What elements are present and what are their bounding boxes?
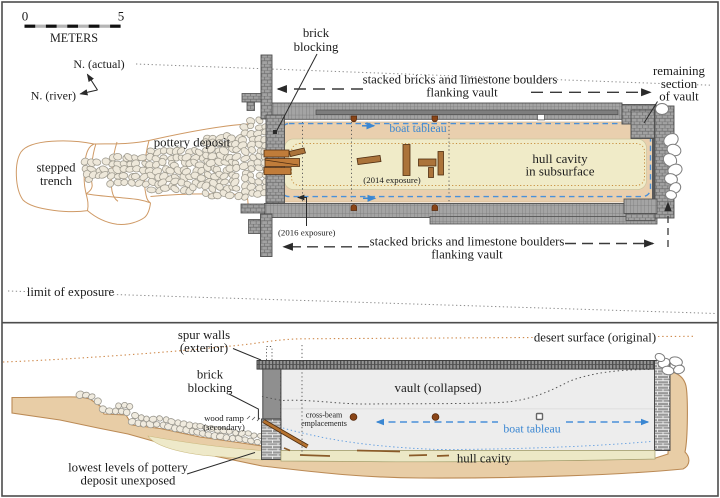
- svg-text:boat tableau: boat tableau: [503, 422, 560, 436]
- svg-text:stacked bricks and limestone b: stacked bricks and limestone boulders: [363, 73, 558, 87]
- svg-text:boat tableau: boat tableau: [389, 121, 446, 135]
- svg-text:(2014 exposure): (2014 exposure): [363, 175, 420, 185]
- svg-text:trench: trench: [40, 174, 73, 188]
- svg-text:(exterior): (exterior): [180, 341, 228, 355]
- svg-text:0: 0: [22, 9, 29, 24]
- svg-text:N. (river): N. (river): [31, 89, 76, 103]
- svg-text:brick: brick: [303, 26, 330, 40]
- svg-text:flanking vault: flanking vault: [431, 248, 503, 262]
- svg-text:deposit unexposed: deposit unexposed: [81, 474, 176, 488]
- svg-text:pottery deposit: pottery deposit: [154, 136, 231, 150]
- svg-text:emplacements: emplacements: [301, 419, 347, 428]
- svg-text:vault (collapsed): vault (collapsed): [395, 380, 482, 395]
- svg-text:of vault: of vault: [659, 90, 699, 104]
- svg-text:METERS: METERS: [50, 31, 98, 45]
- svg-text:flanking vault: flanking vault: [426, 86, 498, 100]
- svg-text:desert surface (original): desert surface (original): [534, 331, 656, 345]
- svg-text:lowest levels of pottery: lowest levels of pottery: [68, 461, 188, 475]
- svg-text:(2016 exposure): (2016 exposure): [278, 228, 335, 238]
- svg-text:(secondary): (secondary): [203, 422, 245, 432]
- svg-text:blocking: blocking: [188, 381, 233, 395]
- svg-text:5: 5: [118, 9, 125, 24]
- svg-text:stacked bricks and limestone b: stacked bricks and limestone boulders: [370, 235, 565, 249]
- svg-text:brick: brick: [197, 368, 224, 382]
- svg-text:in subsurface: in subsurface: [526, 164, 595, 179]
- svg-text:stepped: stepped: [36, 161, 76, 175]
- svg-text:spur walls: spur walls: [178, 328, 230, 342]
- svg-text:blocking: blocking: [294, 40, 339, 54]
- svg-text:limit of exposure: limit of exposure: [27, 285, 115, 299]
- svg-text:remaining: remaining: [653, 64, 705, 78]
- svg-text:N. (actual): N. (actual): [73, 57, 124, 71]
- svg-text:hull cavity: hull cavity: [457, 452, 512, 466]
